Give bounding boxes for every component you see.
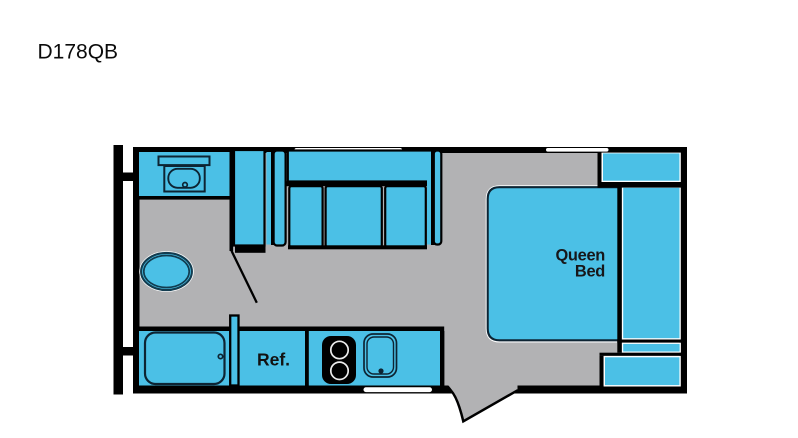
svg-text:Ref.: Ref.	[257, 349, 290, 369]
svg-text:Bed: Bed	[575, 262, 605, 280]
svg-text:D178QB: D178QB	[38, 40, 119, 63]
